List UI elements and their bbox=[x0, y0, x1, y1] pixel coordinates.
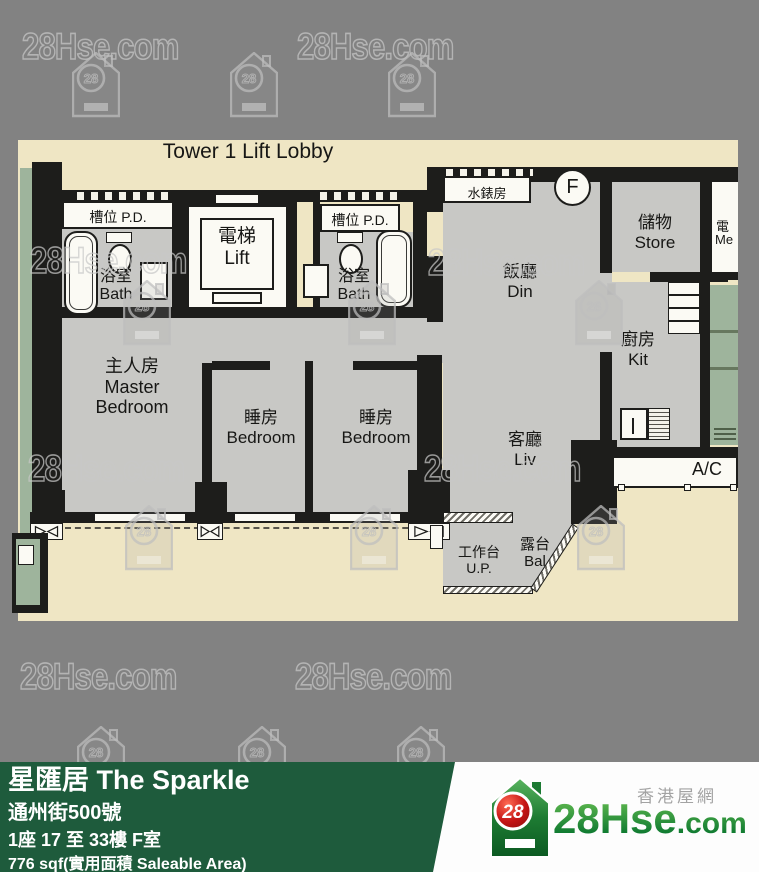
wall bbox=[600, 172, 612, 273]
label-balcony: 露台 Bal bbox=[508, 536, 562, 571]
watermark-text: 28Hse.com bbox=[22, 26, 179, 68]
window-symbol bbox=[197, 523, 223, 540]
wall bbox=[353, 361, 419, 370]
ac-tick bbox=[684, 484, 691, 491]
watermark-text: 28Hse.com bbox=[20, 656, 177, 698]
label-line: Kit bbox=[603, 350, 673, 370]
louvre-vent bbox=[77, 192, 173, 200]
label-store: 儲物 Store bbox=[615, 213, 695, 252]
label-ac: A/C bbox=[678, 459, 736, 480]
label-line: Lift bbox=[193, 248, 281, 270]
label-line: Din bbox=[480, 282, 560, 302]
label-dining: 飯廳 Din bbox=[480, 262, 560, 301]
kitchen-counter bbox=[648, 408, 670, 440]
label-line: Bal bbox=[508, 553, 562, 570]
water-meter-box: 水錶房 bbox=[443, 176, 531, 203]
plan-title: Tower 1 Lift Lobby bbox=[148, 140, 348, 164]
pd2-box: 槽位 P.D. bbox=[320, 204, 400, 232]
ac-tick bbox=[730, 484, 737, 491]
wall bbox=[212, 361, 270, 370]
svg-text:28: 28 bbox=[501, 802, 524, 823]
label-line: 廚房 bbox=[603, 330, 673, 350]
balcony-door-gap bbox=[513, 512, 571, 523]
estate-name: 星匯居 The Sparkle bbox=[8, 764, 250, 797]
label-line: 儲物 bbox=[615, 213, 695, 233]
label-kitchen: 廚房 Kit bbox=[603, 330, 673, 369]
svg-text:28: 28 bbox=[400, 71, 414, 86]
svg-text:28: 28 bbox=[89, 745, 103, 760]
corridor bbox=[202, 318, 443, 363]
label-line: 浴室 bbox=[84, 268, 148, 286]
floorplan-page: Tower 1 Lift Lobby bbox=[0, 0, 759, 872]
wall bbox=[710, 272, 738, 280]
kitchen-shelves bbox=[668, 282, 700, 334]
water-meter-label: 水錶房 bbox=[445, 183, 529, 202]
label-line: Bath bbox=[322, 286, 386, 304]
meter-room: 電 Me bbox=[710, 182, 738, 272]
structural-column bbox=[571, 440, 617, 524]
louvre-vent bbox=[446, 169, 533, 176]
label-line: 客廳 bbox=[485, 430, 565, 450]
wall bbox=[700, 172, 710, 456]
annex-box bbox=[18, 545, 34, 565]
brand-main: 28Hse bbox=[553, 795, 677, 842]
window bbox=[235, 514, 295, 521]
label-bath1: 浴室 Bath bbox=[84, 268, 148, 305]
pd1-box: 槽位 P.D. bbox=[62, 201, 174, 229]
label-bath2: 浴室 Bath bbox=[322, 268, 386, 305]
floorplan-canvas: Tower 1 Lift Lobby bbox=[18, 140, 738, 621]
exterior-green-strip-right bbox=[710, 285, 738, 445]
window bbox=[95, 514, 185, 521]
balcony-side-panel bbox=[430, 525, 443, 549]
watermark-text: 28Hse.com bbox=[297, 26, 454, 68]
label-utility-platform: 工作台 U.P. bbox=[451, 544, 507, 576]
label-line: 睡房 bbox=[326, 408, 426, 428]
label-line: Store bbox=[615, 233, 695, 253]
green-strip-line bbox=[710, 330, 738, 333]
wall bbox=[305, 361, 313, 512]
label-line: 電梯 bbox=[193, 226, 281, 248]
label-line: 飯廳 bbox=[480, 262, 560, 282]
louvre-vent bbox=[320, 192, 400, 200]
label-line: Liv bbox=[485, 450, 565, 470]
svg-text:28: 28 bbox=[242, 71, 256, 86]
setback-dashed-line bbox=[65, 527, 438, 529]
toilet-tank bbox=[106, 232, 132, 243]
window bbox=[330, 514, 400, 521]
toilet-tank bbox=[337, 232, 363, 243]
watermark-28hse-icon: 28 bbox=[388, 52, 436, 118]
kitchen-sink bbox=[620, 408, 648, 440]
wall bbox=[32, 162, 62, 523]
estate-address: 通州街500號 bbox=[8, 800, 250, 826]
label-line: Master bbox=[82, 377, 182, 398]
label-line: Bedroom bbox=[216, 428, 306, 448]
pd1-label: 槽位 P.D. bbox=[64, 207, 172, 227]
green-strip-vent bbox=[714, 426, 736, 440]
label-line: 睡房 bbox=[216, 408, 306, 428]
wall bbox=[413, 192, 427, 318]
label-bedroom1: 睡房 Bedroom bbox=[216, 408, 306, 447]
label-living: 客廳 Liv bbox=[485, 430, 565, 469]
watermark-28hse-icon: 28 bbox=[72, 52, 120, 118]
label-line: 浴室 bbox=[322, 268, 386, 286]
window-symbol bbox=[408, 523, 450, 540]
wall bbox=[427, 256, 443, 322]
living-window-sill bbox=[443, 512, 513, 523]
structural-column bbox=[32, 490, 65, 523]
property-info: 星匯居 The Sparkle 通州街500號 1座 17 至 33樓 F室 7… bbox=[8, 762, 250, 872]
label-line: 主人房 bbox=[82, 356, 182, 377]
lift-door-sill bbox=[212, 292, 262, 304]
28hse-logo-icon: 28 bbox=[488, 776, 552, 865]
balcony-parapet bbox=[443, 586, 533, 594]
wall bbox=[600, 447, 738, 456]
unit-letter-circle: F bbox=[554, 169, 591, 206]
unit-letter: F bbox=[556, 176, 589, 199]
svg-text:28: 28 bbox=[250, 745, 264, 760]
label-bedroom2: 睡房 Bedroom bbox=[326, 408, 426, 447]
watermark-28hse-icon: 28 bbox=[230, 52, 278, 118]
svg-text:28: 28 bbox=[409, 745, 423, 760]
label-line: U.P. bbox=[451, 560, 507, 576]
svg-text:28: 28 bbox=[84, 71, 98, 86]
label-line: Bedroom bbox=[82, 397, 182, 418]
structural-column bbox=[195, 482, 227, 523]
logo-panel: 28 香港屋網 28Hse.com bbox=[433, 762, 759, 872]
lift-shaft-wall bbox=[286, 207, 297, 310]
watermark-text: 28Hse.com bbox=[295, 656, 452, 698]
saleable-area: 776 sqf(實用面積 Saleable Area) bbox=[8, 854, 250, 872]
lift-top-recess bbox=[215, 194, 259, 204]
brand-wordmark: 28Hse.com bbox=[553, 795, 747, 843]
ac-tick bbox=[618, 484, 625, 491]
label-line: 露台 bbox=[508, 536, 562, 553]
label-line: Bedroom bbox=[326, 428, 426, 448]
label-lift: 電梯 Lift bbox=[193, 226, 281, 270]
green-strip-line bbox=[710, 367, 738, 370]
unit-info: 1座 17 至 33樓 F室 bbox=[8, 828, 250, 852]
label-line: Bath bbox=[84, 286, 148, 304]
label-line: 工作台 bbox=[451, 544, 507, 560]
brand-suffix: .com bbox=[677, 807, 747, 840]
lift-shaft-wall bbox=[178, 207, 189, 310]
meter-label-en: Me bbox=[715, 232, 733, 247]
label-master-bedroom: 主人房 Master Bedroom bbox=[82, 356, 182, 418]
pd2-label: 槽位 P.D. bbox=[322, 210, 398, 230]
